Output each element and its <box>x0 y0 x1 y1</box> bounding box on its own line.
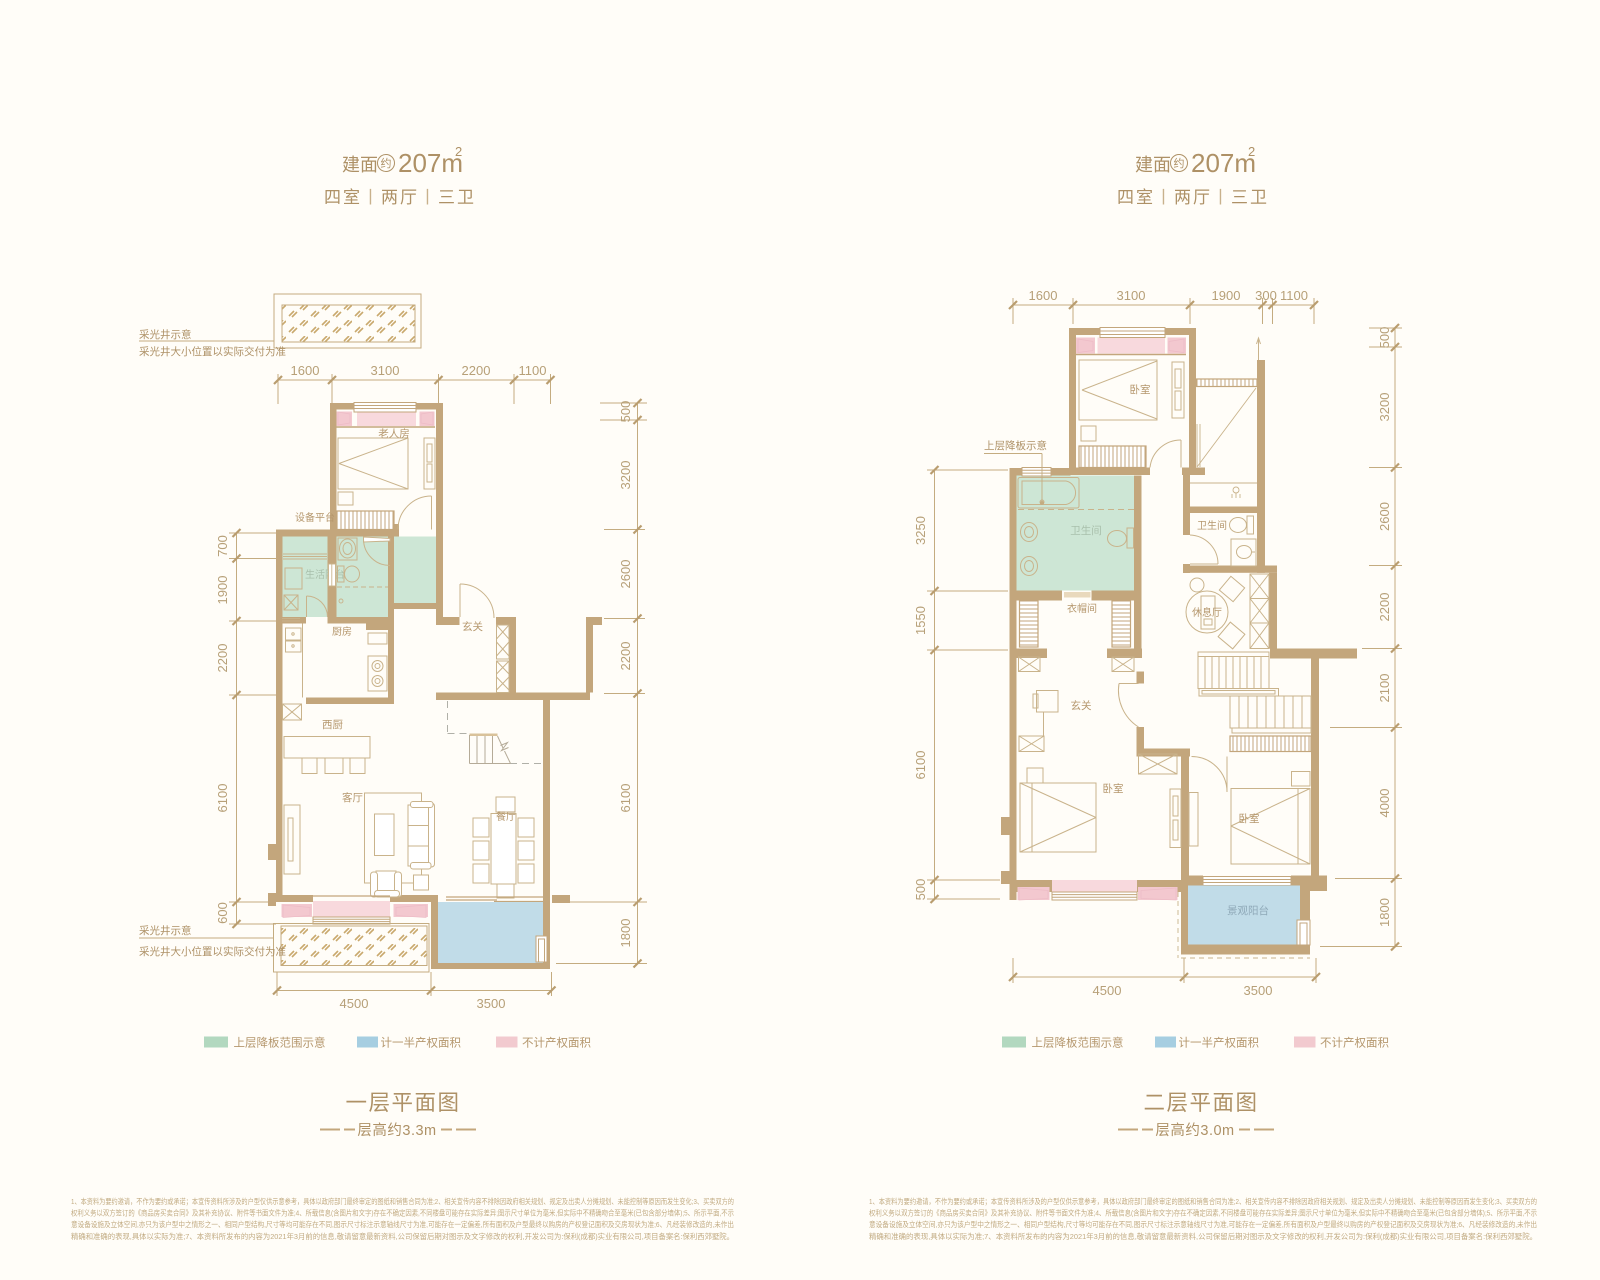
svg-text:西厨: 西厨 <box>322 719 343 731</box>
svg-text:计一半产权面积: 计一半产权面积 <box>381 1036 462 1050</box>
svg-text:2600: 2600 <box>1377 502 1392 531</box>
svg-text:2100: 2100 <box>1377 674 1392 703</box>
svg-text:700: 700 <box>215 535 230 557</box>
svg-text:休息厅: 休息厅 <box>1192 606 1222 619</box>
svg-text:500: 500 <box>1377 327 1392 349</box>
svg-text:上层降板范围示意: 上层降板范围示意 <box>1032 1036 1124 1050</box>
svg-text:卫生间: 卫生间 <box>1197 519 1227 532</box>
svg-text:不计产权面积: 不计产权面积 <box>1320 1036 1389 1050</box>
svg-text:1900: 1900 <box>1212 288 1241 303</box>
svg-text:意设备设施及立体空间,亦只为该户型中之情形之一、相同户型结构: 意设备设施及立体空间,亦只为该户型中之情形之一、相同户型结构,尺寸等均可能存在不… <box>869 1219 1537 1229</box>
svg-text:上层降板范围示意: 上层降板范围示意 <box>234 1036 326 1050</box>
svg-text:500: 500 <box>618 401 633 423</box>
svg-text:4500: 4500 <box>1093 983 1122 998</box>
svg-text:精确和准确的表现,具体以实际为准;7、本资料所发布的内容为2: 精确和准确的表现,具体以实际为准;7、本资料所发布的内容为2021年3月前的信息… <box>869 1231 1537 1241</box>
svg-text:二层平面图: 二层平面图 <box>1143 1091 1258 1115</box>
svg-text:1、本资料为要约邀请，不作为要约或承诺；本宣传资料所涉及的户: 1、本资料为要约邀请，不作为要约或承诺；本宣传资料所涉及的户型仅供示意参考，具体… <box>869 1196 1537 1206</box>
svg-text:采光井示意: 采光井示意 <box>139 924 192 937</box>
svg-text:约: 约 <box>381 157 392 170</box>
svg-text:卧室: 卧室 <box>1239 812 1260 825</box>
svg-text:3100: 3100 <box>1117 288 1146 303</box>
svg-text:3200: 3200 <box>618 461 633 490</box>
svg-text:客厅: 客厅 <box>342 791 363 804</box>
svg-text:建面: 建面 <box>342 155 378 175</box>
svg-text:景观阳台: 景观阳台 <box>1227 904 1269 917</box>
svg-text:300: 300 <box>1255 288 1277 303</box>
svg-text:207m: 207m <box>398 148 463 178</box>
svg-text:不计产权面积: 不计产权面积 <box>522 1036 591 1050</box>
svg-text:2200: 2200 <box>1377 593 1392 622</box>
svg-text:约: 约 <box>1174 157 1185 170</box>
svg-text:生活阳台: 生活阳台 <box>305 568 345 581</box>
svg-text:权利义务以双方签订的《商品房买卖合同》及其补充协议、附件等书: 权利义务以双方签订的《商品房买卖合同》及其补充协议、附件等书面文件为准;4、所载… <box>71 1208 734 1218</box>
svg-text:厨房: 厨房 <box>332 625 352 638</box>
svg-text:1900: 1900 <box>215 576 230 605</box>
svg-text:老人房: 老人房 <box>378 427 410 440</box>
svg-text:意设备设施及立体空间,亦只为该户型中之情形之一、相同户型结构: 意设备设施及立体空间,亦只为该户型中之情形之一、相同户型结构,尺寸等均可能存在不… <box>71 1219 734 1229</box>
svg-text:2200: 2200 <box>462 363 491 378</box>
svg-text:卧室: 卧室 <box>1130 383 1151 396</box>
svg-text:卫生间: 卫生间 <box>1070 524 1102 537</box>
svg-text:一层平面图: 一层平面图 <box>345 1091 460 1115</box>
svg-text:卧室: 卧室 <box>1103 782 1124 795</box>
svg-text:1550: 1550 <box>913 606 928 635</box>
svg-text:6100: 6100 <box>618 784 633 813</box>
svg-text:上层降板示意: 上层降板示意 <box>984 439 1047 452</box>
svg-text:四室丨两厅丨三卫: 四室丨两厅丨三卫 <box>324 188 476 207</box>
svg-text:采光井示意: 采光井示意 <box>139 328 192 341</box>
svg-text:1、本资料为要约邀请，不作为要约或承诺；本宣传资料所涉及的户: 1、本资料为要约邀请，不作为要约或承诺；本宣传资料所涉及的户型仅供示意参考，具体… <box>71 1196 734 1206</box>
svg-text:207m: 207m <box>1191 148 1256 178</box>
svg-text:3250: 3250 <box>913 516 928 545</box>
svg-text:3100: 3100 <box>371 363 400 378</box>
svg-text:玄关: 玄关 <box>1071 699 1093 712</box>
svg-text:6100: 6100 <box>215 784 230 813</box>
svg-text:4000: 4000 <box>1377 789 1392 818</box>
svg-text:2200: 2200 <box>618 642 633 671</box>
svg-text:设备平台: 设备平台 <box>295 511 335 524</box>
svg-text:1100: 1100 <box>519 363 547 378</box>
svg-text:2200: 2200 <box>215 644 230 673</box>
svg-text:600: 600 <box>215 902 230 924</box>
svg-text:1100: 1100 <box>1280 288 1308 303</box>
svg-text:权利义务以双方签订的《商品房买卖合同》及其补充协议、附件等书: 权利义务以双方签订的《商品房买卖合同》及其补充协议、附件等书面文件为准;4、所载… <box>869 1208 1537 1218</box>
svg-text:3500: 3500 <box>1244 983 1273 998</box>
svg-text:玄关: 玄关 <box>462 620 483 633</box>
svg-text:500: 500 <box>913 879 928 901</box>
svg-text:1800: 1800 <box>1377 898 1392 927</box>
svg-text:6100: 6100 <box>913 751 928 780</box>
svg-text:精确和准确的表现,具体以实际为准;7、本资料所发布的内容为2: 精确和准确的表现,具体以实际为准;7、本资料所发布的内容为2021年3月前的信息… <box>71 1231 734 1241</box>
svg-text:1600: 1600 <box>1029 288 1058 303</box>
svg-text:采光井大小位置以实际交付为准: 采光井大小位置以实际交付为准 <box>139 345 286 358</box>
svg-text:建面: 建面 <box>1135 155 1171 175</box>
svg-text:1600: 1600 <box>291 363 320 378</box>
svg-text:3200: 3200 <box>1377 393 1392 422</box>
svg-text:2: 2 <box>455 144 462 159</box>
svg-text:衣帽间: 衣帽间 <box>1067 602 1097 615</box>
svg-text:层高约3.3m: 层高约3.3m <box>357 1122 436 1139</box>
svg-text:1800: 1800 <box>618 919 633 948</box>
svg-text:3500: 3500 <box>477 996 506 1011</box>
svg-text:2: 2 <box>1248 144 1255 159</box>
svg-text:2600: 2600 <box>618 560 633 589</box>
svg-text:四室丨两厅丨三卫: 四室丨两厅丨三卫 <box>1117 188 1269 207</box>
svg-text:层高约3.0m: 层高约3.0m <box>1155 1122 1234 1139</box>
svg-text:计一半产权面积: 计一半产权面积 <box>1179 1036 1260 1050</box>
svg-text:餐厅: 餐厅 <box>496 810 516 823</box>
svg-text:4500: 4500 <box>340 996 369 1011</box>
svg-text:采光井大小位置以实际交付为准: 采光井大小位置以实际交付为准 <box>139 945 286 958</box>
